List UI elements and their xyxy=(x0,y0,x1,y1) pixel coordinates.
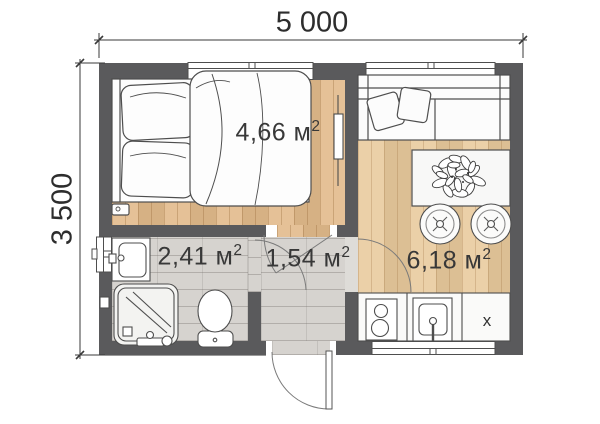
bedroom-door-threshold xyxy=(277,225,330,237)
hallway-area-label: 1,54 м2 xyxy=(266,245,351,274)
dimension-width-label: 5 000 xyxy=(276,7,349,40)
wall-divider-lower xyxy=(345,292,358,341)
window-bedroom xyxy=(188,63,313,80)
wall-bedroom-bottom xyxy=(112,225,266,237)
living-area-label: 6,18 м2 xyxy=(407,247,492,276)
bedroom-door-jamb-left xyxy=(266,225,277,237)
wall-top-middle xyxy=(313,63,366,80)
entrance-jamb-right xyxy=(330,341,336,355)
window-kitchen xyxy=(372,342,495,355)
wall-bottom-left xyxy=(99,341,266,355)
bedroom-area-label: 4,66 м2 xyxy=(236,119,321,148)
living-room-floor xyxy=(358,80,510,341)
bedroom-floor xyxy=(112,80,345,225)
wall-right xyxy=(510,63,523,355)
wall-bathroom-hallway xyxy=(248,292,261,341)
wall-top-left xyxy=(99,63,188,80)
floor-plan: 5 000 3 500 4,66 м2 2,41 м2 1,54 м2 6,18… xyxy=(0,0,600,424)
bedroom-door-jamb-right xyxy=(330,225,337,237)
bathroom-area-label: 2,41 м2 xyxy=(158,243,243,272)
entrance-door-opening xyxy=(272,341,330,355)
entrance-door xyxy=(272,351,332,409)
wall-bedroom-bottom-stub xyxy=(337,225,345,237)
dimension-height-label: 3 500 xyxy=(47,173,80,246)
window-bathroom xyxy=(92,237,112,272)
wall-bottom-right xyxy=(495,341,523,355)
wall-divider-upper xyxy=(345,80,358,237)
window-living xyxy=(366,63,495,80)
kitchen-cabinet-label: х xyxy=(483,311,492,331)
entrance-jamb-left xyxy=(266,341,272,355)
bathroom-door-opening xyxy=(248,237,261,292)
wall-left-upper xyxy=(99,63,112,237)
wall-bottom-middle xyxy=(336,341,372,355)
